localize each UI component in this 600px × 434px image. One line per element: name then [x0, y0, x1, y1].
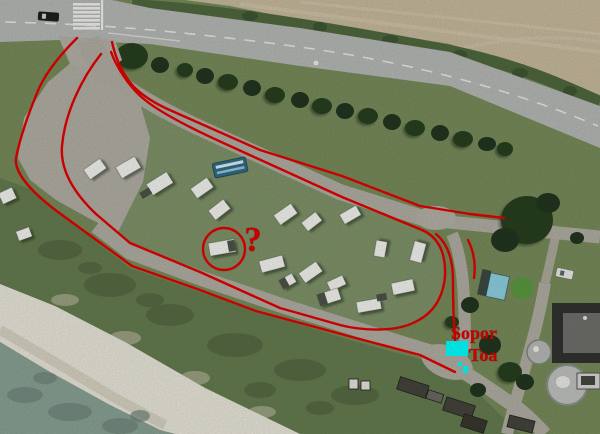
- aerial-map-screenshot: ? Sopor Toa: [0, 0, 600, 434]
- photo-grain-overlay: [0, 0, 600, 434]
- aerial-photo: ? Sopor Toa: [0, 0, 600, 434]
